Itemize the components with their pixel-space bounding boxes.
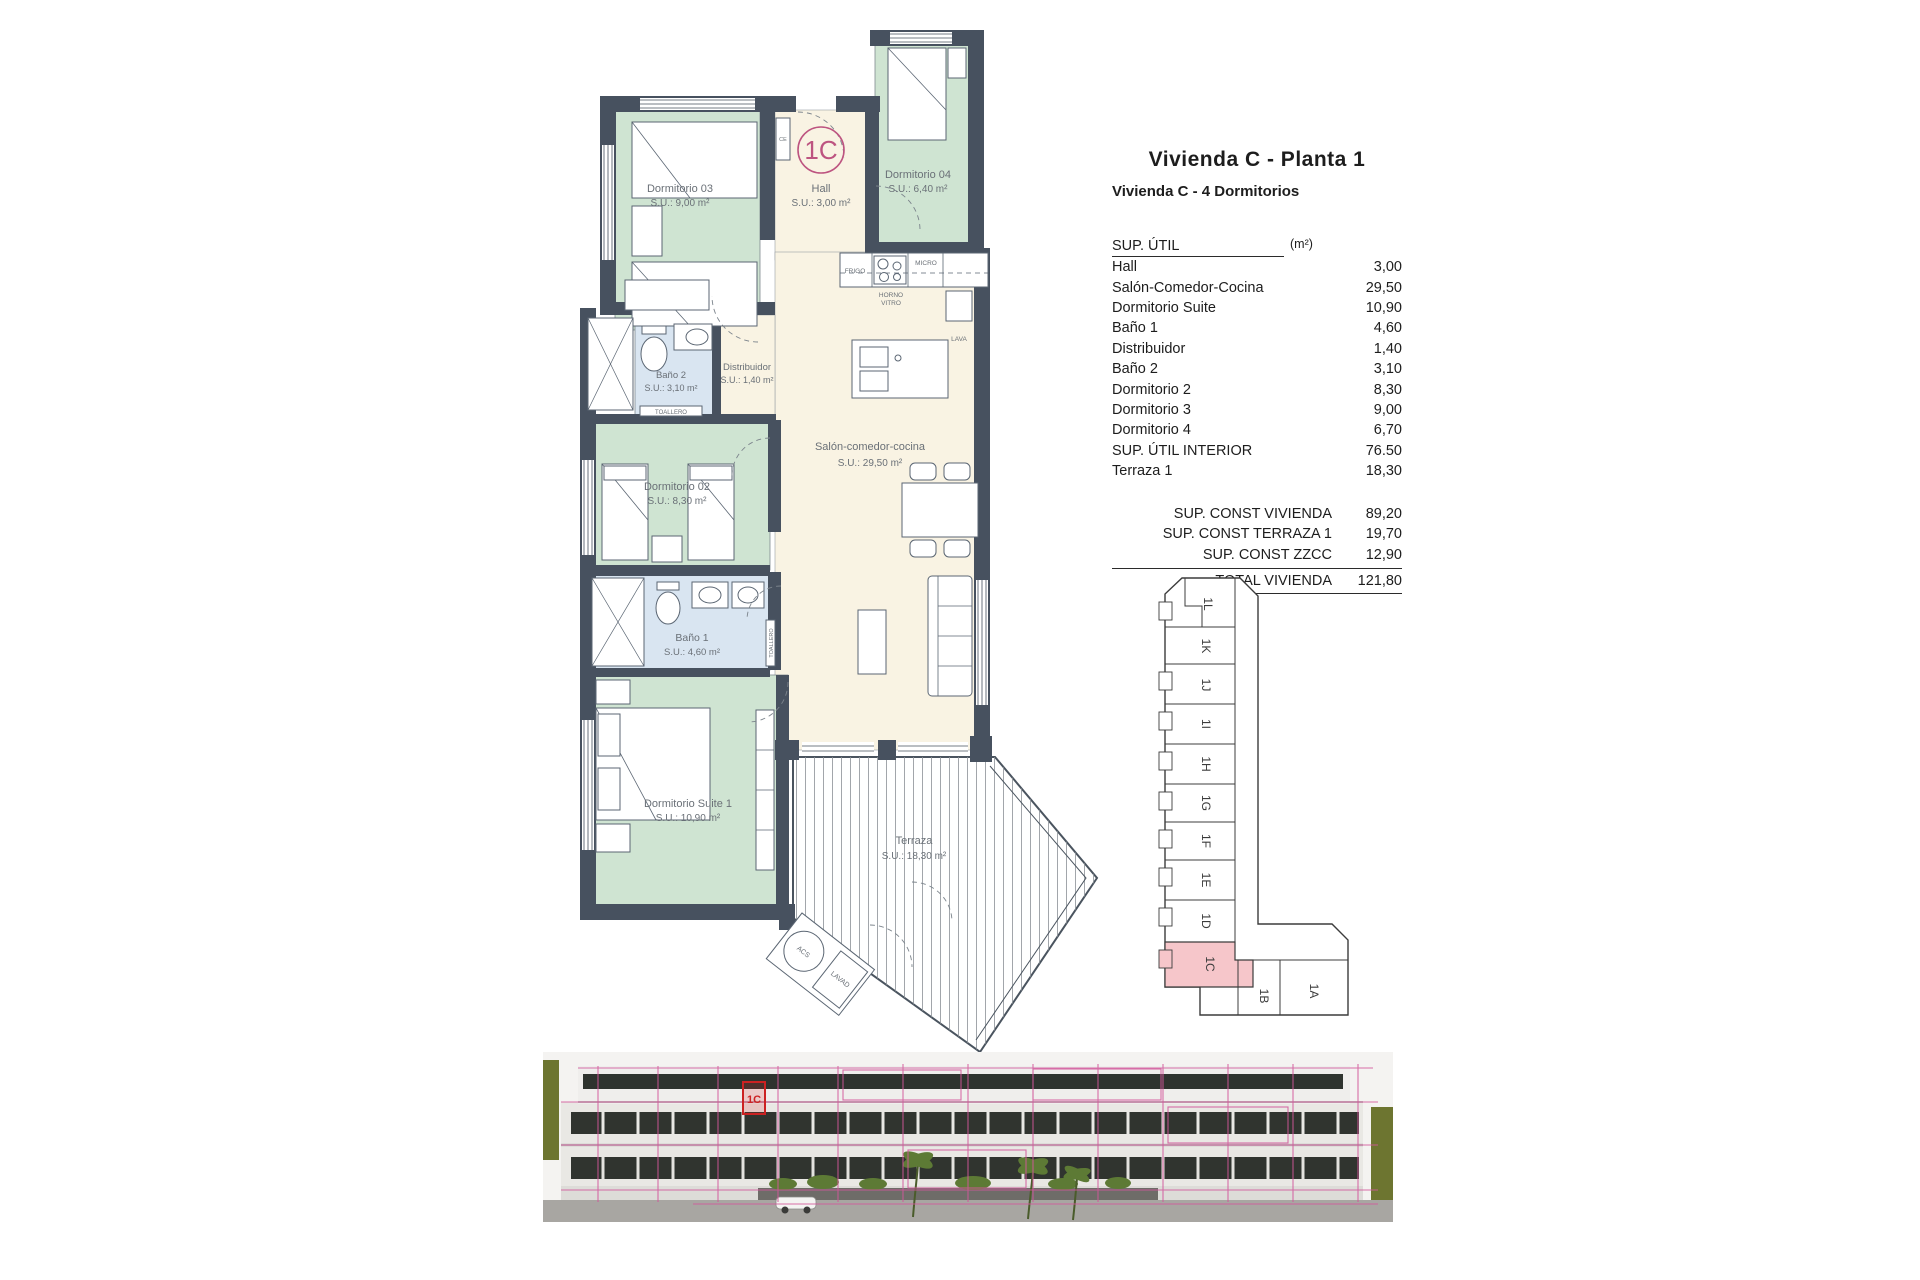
svg-text:MICRO: MICRO bbox=[915, 260, 937, 267]
keyplan-unit: 1B bbox=[1257, 989, 1271, 1004]
row-value: 3,10 bbox=[1374, 361, 1402, 377]
table-row: Dormitorio 46,70 bbox=[1112, 420, 1402, 440]
keyplan-unit: 1L bbox=[1201, 597, 1215, 611]
table-row: Dormitorio Suite10,90 bbox=[1112, 298, 1402, 318]
svg-text:Dormitorio Suite 1: Dormitorio Suite 1 bbox=[644, 798, 732, 810]
svg-text:LAVA: LAVA bbox=[951, 336, 967, 343]
row-label: Baño 2 bbox=[1112, 361, 1158, 377]
area-table: SUP. ÚTIL (m²) Hall3,00 Salón-Comedor-Co… bbox=[1112, 234, 1402, 481]
row-value: 3,00 bbox=[1374, 259, 1402, 275]
summary-row: SUP. CONST VIVIENDA89,20 bbox=[1112, 503, 1402, 524]
table-row: Baño 23,10 bbox=[1112, 359, 1402, 379]
keyplan-unit: 1D bbox=[1199, 913, 1213, 929]
wardrobe bbox=[625, 280, 709, 310]
keyplan-unit: 1J bbox=[1199, 679, 1213, 692]
page-title: Vivienda C - Planta 1 bbox=[1112, 148, 1402, 172]
unit-badge-label: 1C bbox=[804, 135, 837, 165]
summary-row: SUP. CONST ZZCC12,90 bbox=[1112, 544, 1402, 565]
svg-text:Dormitorio 04: Dormitorio 04 bbox=[885, 169, 951, 181]
svg-text:S.U.: 6,40 m²: S.U.: 6,40 m² bbox=[889, 184, 949, 195]
row-value: 8,30 bbox=[1374, 382, 1402, 398]
row-label: Dormitorio 3 bbox=[1112, 402, 1191, 418]
table-row: Terraza 118,30 bbox=[1112, 461, 1402, 481]
summary-label: SUP. CONST VIVIENDA bbox=[1112, 506, 1350, 522]
svg-text:Baño 1: Baño 1 bbox=[675, 632, 708, 644]
table-row: Hall3,00 bbox=[1112, 257, 1402, 277]
table-header: SUP. ÚTIL (m²) bbox=[1112, 234, 1402, 257]
floorplan: 1C Dormitorio 03 S.U.: 9,00 m² Hall S.U.… bbox=[540, 20, 1120, 1070]
row-value: 9,00 bbox=[1374, 402, 1402, 418]
summary-value: 89,20 bbox=[1350, 506, 1402, 522]
svg-text:S.U.: 4,60 m²: S.U.: 4,60 m² bbox=[664, 647, 720, 658]
plan-sheet: 1C Dormitorio 03 S.U.: 9,00 m² Hall S.U.… bbox=[0, 0, 1920, 1280]
row-label: Dormitorio 2 bbox=[1112, 382, 1191, 398]
table-row: SUP. ÚTIL INTERIOR76.50 bbox=[1112, 441, 1402, 461]
row-value: 29,50 bbox=[1366, 280, 1402, 296]
summary-value: 12,90 bbox=[1350, 547, 1402, 563]
col-unit: (m²) bbox=[1290, 237, 1313, 251]
page-subtitle: Vivienda C - 4 Dormitorios bbox=[1112, 183, 1402, 200]
vegetation-right bbox=[1371, 1107, 1393, 1207]
table-row: Dormitorio 28,30 bbox=[1112, 379, 1402, 399]
svg-text:Dormitorio 02: Dormitorio 02 bbox=[644, 481, 710, 493]
vegetation-left bbox=[543, 1060, 559, 1160]
table-row: Dormitorio 39,00 bbox=[1112, 400, 1402, 420]
keyplan-unit-highlighted: 1C bbox=[1203, 956, 1217, 972]
svg-text:S.U.: 8,30 m²: S.U.: 8,30 m² bbox=[648, 496, 708, 507]
keyplan-unit: 1F bbox=[1199, 834, 1213, 848]
summary-row: SUP. CONST TERRAZA 119,70 bbox=[1112, 524, 1402, 545]
col-label: SUP. ÚTIL bbox=[1112, 238, 1179, 254]
row-value: 4,60 bbox=[1374, 320, 1402, 336]
keyplan-unit: 1H bbox=[1199, 756, 1213, 771]
svg-text:Terraza: Terraza bbox=[896, 835, 934, 847]
row-label: Distribuidor bbox=[1112, 341, 1185, 357]
svg-text:CE: CE bbox=[779, 137, 787, 143]
svg-text:Baño 2: Baño 2 bbox=[656, 370, 686, 381]
table-row: Baño 14,60 bbox=[1112, 318, 1402, 338]
keyplan-unit: 1A bbox=[1307, 984, 1321, 999]
svg-text:S.U.: 3,00 m²: S.U.: 3,00 m² bbox=[792, 198, 852, 209]
svg-text:S.U.: 10,90 m²: S.U.: 10,90 m² bbox=[656, 813, 721, 824]
svg-text:S.U.: 3,10 m²: S.U.: 3,10 m² bbox=[644, 383, 697, 393]
unit-highlight-box: 1C bbox=[743, 1082, 765, 1114]
road bbox=[543, 1200, 1393, 1222]
row-value: 1,40 bbox=[1374, 341, 1402, 357]
unit-highlight-label: 1C bbox=[747, 1094, 761, 1106]
svg-text:Dormitorio 03: Dormitorio 03 bbox=[647, 183, 713, 195]
info-panel: Vivienda C - Planta 1 Vivienda C - 4 Dor… bbox=[1112, 148, 1402, 594]
table-row: Salón-Comedor-Cocina29,50 bbox=[1112, 277, 1402, 297]
svg-text:S.U.: 18,30 m²: S.U.: 18,30 m² bbox=[882, 851, 947, 862]
row-value: 10,90 bbox=[1366, 300, 1402, 316]
kitchen-island bbox=[852, 340, 948, 398]
keyplan-unit: 1K bbox=[1199, 639, 1213, 654]
keyplan-unit: 1G bbox=[1199, 795, 1213, 811]
svg-text:Distribuidor: Distribuidor bbox=[723, 362, 771, 373]
svg-text:HORNO: HORNO bbox=[879, 292, 903, 299]
svg-text:Salón-comedor-cocina: Salón-comedor-cocina bbox=[815, 441, 926, 453]
keyplan: 1L 1K 1J 1I 1H 1G 1F 1E 1D 1C 1B 1A bbox=[1140, 572, 1370, 1032]
row-label: Hall bbox=[1112, 259, 1137, 275]
keyplan-unit: 1E bbox=[1199, 873, 1213, 888]
row-value: 6,70 bbox=[1374, 422, 1402, 438]
svg-text:S.U.: 1,40 m²: S.U.: 1,40 m² bbox=[720, 375, 773, 385]
row-label: Salón-Comedor-Cocina bbox=[1112, 280, 1264, 296]
summary-label: SUP. CONST TERRAZA 1 bbox=[1112, 526, 1350, 542]
building-photo: 1C bbox=[543, 1052, 1393, 1222]
svg-text:FRIGO: FRIGO bbox=[845, 268, 866, 275]
row-label: Dormitorio 4 bbox=[1112, 422, 1191, 438]
row-label: Terraza 1 bbox=[1112, 463, 1172, 479]
summary-value: 19,70 bbox=[1350, 526, 1402, 542]
svg-text:S.U.: 9,00 m²: S.U.: 9,00 m² bbox=[651, 198, 711, 209]
svg-text:VITRO: VITRO bbox=[881, 300, 901, 307]
svg-text:S.U.: 29,50 m²: S.U.: 29,50 m² bbox=[838, 458, 903, 469]
table-row: Distribuidor1,40 bbox=[1112, 339, 1402, 359]
svg-text:Hall: Hall bbox=[812, 183, 831, 195]
row-label: Dormitorio Suite bbox=[1112, 300, 1216, 316]
svg-text:TOALLERO: TOALLERO bbox=[769, 628, 775, 658]
header-underline bbox=[1112, 256, 1284, 257]
summary-label: SUP. CONST ZZCC bbox=[1112, 547, 1350, 563]
svg-text:TOALLERO: TOALLERO bbox=[655, 410, 687, 416]
row-label: Baño 1 bbox=[1112, 320, 1158, 336]
row-value: 76.50 bbox=[1366, 443, 1402, 459]
keyplan-unit: 1I bbox=[1199, 719, 1213, 729]
row-label: SUP. ÚTIL INTERIOR bbox=[1112, 443, 1252, 459]
row-value: 18,30 bbox=[1366, 463, 1402, 479]
